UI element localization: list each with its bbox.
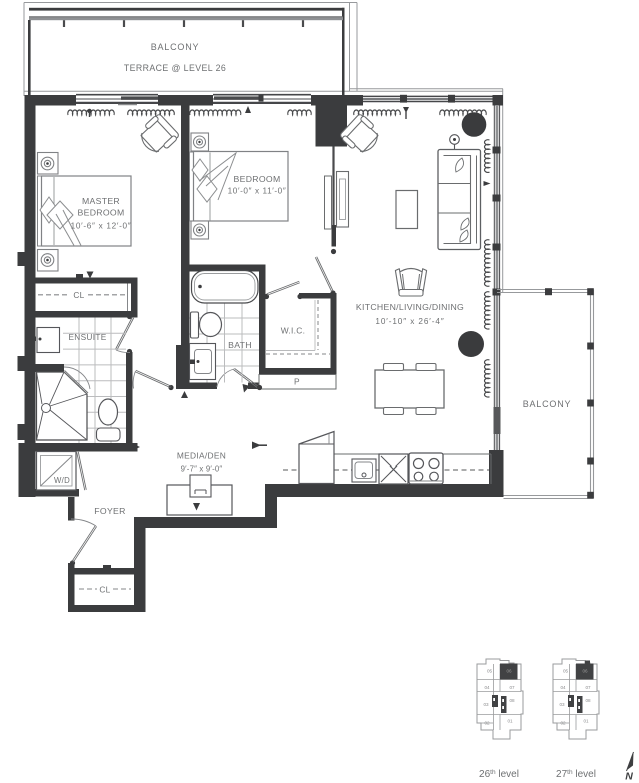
svg-text:03: 03: [559, 702, 565, 707]
svg-text:BEDROOM: BEDROOM: [234, 174, 281, 184]
svg-text:08: 08: [585, 698, 591, 703]
svg-text:BALCONY: BALCONY: [523, 399, 572, 409]
svg-text:CL: CL: [99, 585, 110, 595]
svg-text:BALCONY: BALCONY: [151, 42, 200, 52]
svg-text:01: 01: [507, 719, 513, 724]
svg-text:KITCHEN/LIVING/DINING: KITCHEN/LIVING/DINING: [356, 302, 464, 312]
svg-text:BEDROOM: BEDROOM: [78, 208, 125, 218]
svg-text:10′-0″ x 11′-0″: 10′-0″ x 11′-0″: [228, 187, 287, 196]
svg-text:26th level: 26th level: [479, 769, 519, 780]
svg-text:08: 08: [509, 698, 515, 703]
svg-text:02: 02: [484, 721, 490, 726]
svg-text:07: 07: [509, 685, 515, 690]
svg-text:W/D: W/D: [54, 476, 70, 485]
svg-text:MASTER: MASTER: [82, 196, 120, 206]
svg-text:04: 04: [484, 685, 490, 690]
svg-text:P: P: [294, 377, 300, 387]
svg-text:MEDIA/DEN: MEDIA/DEN: [177, 451, 226, 461]
svg-text:01: 01: [583, 719, 589, 724]
svg-text:02: 02: [560, 721, 566, 726]
svg-text:CL: CL: [73, 290, 84, 300]
svg-text:9′-7″ x 9′-0″: 9′-7″ x 9′-0″: [181, 465, 223, 474]
svg-text:N: N: [625, 771, 633, 783]
svg-text:TERRACE @ LEVEL 26: TERRACE @ LEVEL 26: [124, 63, 226, 73]
svg-text:10′-6″ x 12′-0″: 10′-6″ x 12′-0″: [71, 222, 132, 231]
svg-text:ENSUITE: ENSUITE: [68, 332, 106, 342]
svg-text:06: 06: [506, 668, 512, 673]
svg-text:27th level: 27th level: [556, 769, 596, 780]
svg-text:04: 04: [560, 685, 566, 690]
svg-text:06: 06: [582, 668, 588, 673]
svg-text:05: 05: [563, 668, 569, 673]
svg-text:07: 07: [585, 685, 591, 690]
svg-text:03: 03: [483, 702, 489, 707]
svg-text:05: 05: [487, 668, 493, 673]
svg-text:FOYER: FOYER: [94, 506, 125, 516]
svg-text:BATH: BATH: [228, 340, 252, 350]
svg-text:10′-10″ x 26′-4″: 10′-10″ x 26′-4″: [375, 317, 444, 326]
svg-text:W.I.C.: W.I.C.: [281, 326, 306, 336]
